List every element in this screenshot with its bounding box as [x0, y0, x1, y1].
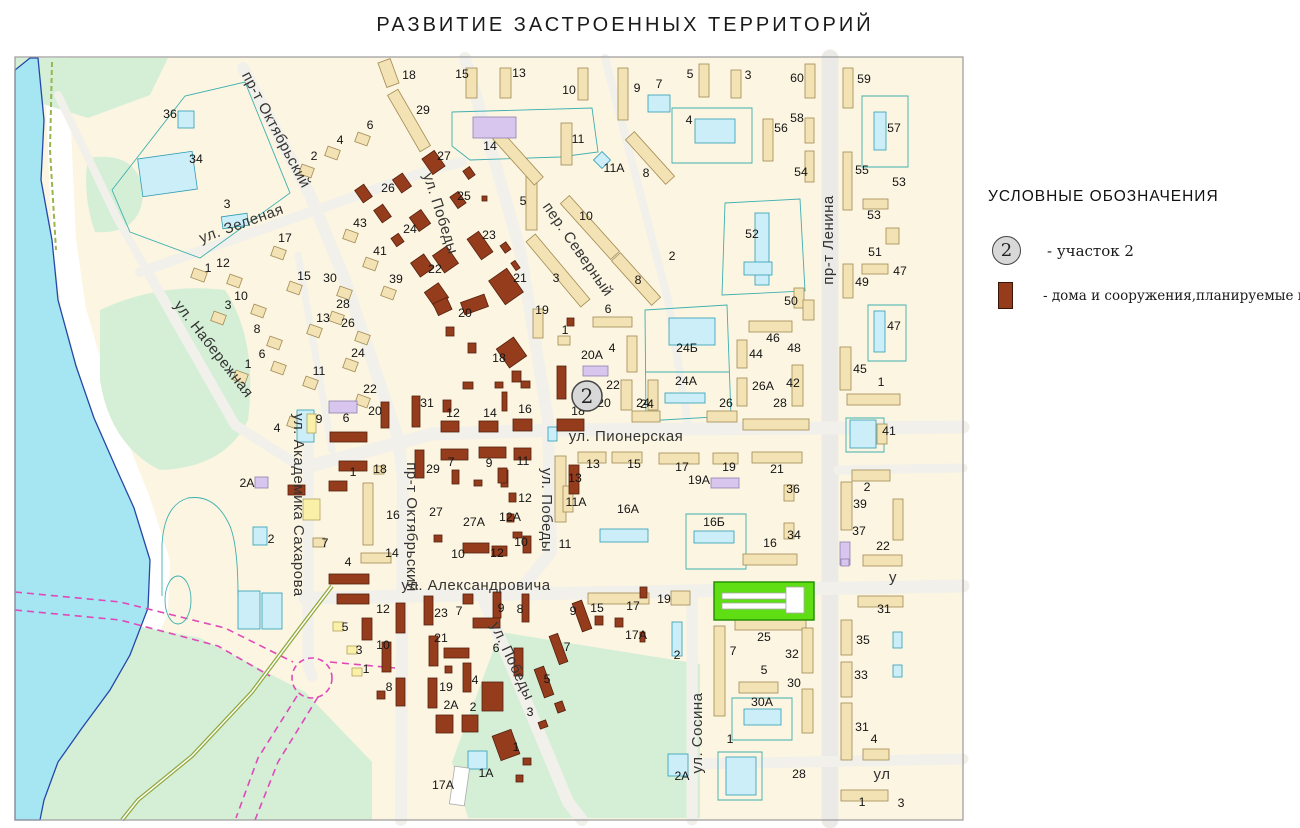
building-number-label: 17 [278, 231, 292, 245]
building-demolition [468, 343, 476, 353]
building-number-label: 19А [688, 473, 711, 487]
building-number-label: 24 [403, 222, 417, 236]
building-number-label: 6 [605, 302, 612, 316]
building-number-label: 2 [669, 249, 676, 263]
building-number-label: 8 [517, 602, 524, 616]
building-number-label: 12 [490, 546, 504, 560]
building-number-label: 45 [853, 362, 867, 376]
building-number-label: 4 [609, 341, 616, 355]
building-public [648, 95, 670, 112]
building-number-label: 7 [456, 604, 463, 618]
building-number-label: 7 [730, 644, 737, 658]
building-demolition [330, 432, 367, 442]
building-number-label: 6 [343, 411, 350, 425]
building-number-label: 53 [892, 175, 906, 189]
building-number-label: 49 [855, 275, 869, 289]
building-number-label: 1 [878, 375, 885, 389]
building-number-label: 28 [773, 396, 787, 410]
building-number-label: 1 [205, 261, 212, 275]
building-number-label: 3 [224, 197, 231, 211]
building-demolition [523, 758, 531, 765]
building-number-label: 9 [316, 412, 323, 426]
building-number-label: 2 [674, 648, 681, 662]
building-demolition [362, 618, 372, 640]
building-number-label: 3 [225, 298, 232, 312]
building-number-label: 31 [877, 602, 891, 616]
building-demolition [463, 663, 471, 692]
building-number-label: 2 [268, 532, 275, 546]
building-number-label: 24А [675, 374, 698, 388]
building-number-label: 26 [341, 316, 355, 330]
building-number-label: 48 [787, 341, 801, 355]
building-number-label: 31 [855, 720, 869, 734]
building [803, 300, 814, 320]
building-demolition [381, 402, 389, 428]
building-number-label: 16А [617, 502, 640, 516]
building-number-label: 39 [853, 497, 867, 511]
building-number-label: 1 [859, 795, 866, 809]
legend-title: УСЛОВНЫЕ ОБОЗНАЧЕНИЯ [988, 188, 1298, 206]
building [843, 68, 853, 108]
building-demolition [444, 648, 469, 658]
building [671, 591, 690, 605]
building-public [893, 665, 902, 677]
building-demolition [595, 616, 603, 625]
building-demolition [463, 543, 489, 553]
building [841, 482, 852, 530]
building-purple [473, 117, 516, 138]
building-number-label: 34 [189, 152, 203, 166]
building-demolition [462, 715, 478, 732]
building-number-label: 9 [634, 81, 641, 95]
building-number-label: 31 [420, 396, 434, 410]
street-name-label: у [889, 569, 897, 586]
building-public [600, 529, 648, 542]
building [893, 499, 903, 540]
building-number-label: 5 [342, 620, 349, 634]
building-number-label: 8 [643, 166, 650, 180]
building-number-label: 27 [437, 149, 451, 163]
building-number-label: 10 [451, 547, 465, 561]
building-demolition [463, 382, 473, 389]
building-demolition [495, 382, 503, 388]
building-number-label: 5 [761, 663, 768, 677]
building-number-label: 2А [239, 476, 255, 490]
building-demolition [377, 691, 385, 699]
building-number-label: 56 [774, 121, 788, 135]
building-number-label: 7 [322, 536, 329, 550]
building-number-label: 15 [455, 67, 469, 81]
building-number-label: 32 [785, 647, 799, 661]
building-demolition [337, 594, 369, 604]
building-number-label: 36 [786, 482, 800, 496]
building-demolition [640, 587, 647, 598]
building-number-label: 1 [363, 662, 370, 676]
building-number-label: 13 [512, 66, 526, 80]
building-number-label: 10 [579, 209, 593, 223]
building-number-label: 7 [448, 455, 455, 469]
legend-demolition-label: - дома и сооружения,планируемые к сносу [1043, 288, 1300, 304]
building-number-label: 60 [790, 71, 804, 85]
building-demolition [479, 447, 506, 458]
building [763, 119, 773, 161]
building-number-label: 22 [606, 378, 620, 392]
building-demolition [412, 396, 420, 427]
building-number-label: 13 [568, 471, 582, 485]
building [500, 68, 511, 98]
building-number-label: 22 [428, 262, 442, 276]
building-number-label: 25 [757, 630, 771, 644]
building-number-label: 29 [416, 103, 430, 117]
building-number-label: 8 [386, 680, 393, 694]
building-number-label: 9 [498, 601, 505, 615]
building-number-label: 12А [499, 510, 522, 524]
building-number-label: 30 [323, 271, 337, 285]
building-number-label: 30А [751, 695, 774, 709]
building-demolition [329, 481, 347, 491]
building-number-label: 1 [350, 465, 357, 479]
building [627, 336, 637, 372]
building-purple [583, 366, 608, 376]
street-name-label: ул. Пионерская [569, 428, 684, 445]
building-number-label: 57 [887, 121, 901, 135]
building-number-label: 19 [722, 460, 736, 474]
building-number-label: 54 [794, 165, 808, 179]
building-number-label: 22 [876, 539, 890, 553]
building-number-label: 22 [363, 382, 377, 396]
building [561, 123, 572, 165]
building-detail [786, 587, 804, 613]
building-number-label: 12 [376, 602, 390, 616]
building-public [238, 591, 260, 629]
building-demolition [428, 678, 437, 708]
building-number-label: 26 [381, 181, 395, 195]
street-name-label: ул. Александровича [401, 577, 550, 594]
building-demolition [482, 682, 503, 711]
building-number-label: 16 [386, 508, 400, 522]
building-number-label: 16 [763, 536, 777, 550]
plot-circle-icon: 2 [992, 236, 1021, 265]
planning-map-page: РАЗВИТИЕ ЗАСТРОЕННЫХ ТЕРРИТОРИЙ 18151310… [0, 0, 1300, 828]
building-demolition [498, 468, 507, 483]
building-purple [711, 478, 739, 488]
building [618, 68, 628, 120]
building-number-label: 15 [627, 457, 641, 471]
building-demolition [479, 421, 498, 432]
street-name-label: пр-т Октябрьский [403, 462, 420, 591]
building-number-label: 58 [790, 111, 804, 125]
building [841, 620, 852, 655]
building [843, 264, 853, 298]
building-number-label: 30 [787, 676, 801, 690]
building-number-label: 10 [514, 535, 528, 549]
building-number-label: 11 [559, 537, 572, 551]
building-number-label: 18 [492, 351, 506, 365]
building [714, 626, 725, 716]
building-number-label: 12 [216, 256, 230, 270]
legend: УСЛОВНЫЕ ОБОЗНАЧЕНИЯ 2 - участок 2 - дом… [988, 188, 1298, 206]
building-number-label: 5 [544, 672, 551, 686]
building-number-label: 11А [566, 495, 588, 509]
building-demolition [482, 196, 487, 201]
building-number-label: 44 [749, 347, 763, 361]
building-number-label: 24 [640, 397, 654, 411]
building-demolition [329, 574, 369, 584]
building-number-label: 13 [586, 457, 600, 471]
building-number-label: 4 [337, 133, 344, 147]
legend-item-demolition: - дома и сооружения,планируемые к сносу [998, 282, 1300, 309]
building-number-label: 5 [520, 194, 527, 208]
building-demolition [512, 371, 521, 382]
building-number-label: 23 [434, 606, 448, 620]
building-number-label: 2 [470, 700, 477, 714]
building-number-label: 11 [313, 364, 326, 378]
building-demolition [436, 715, 453, 733]
building-number-label: 2 [311, 149, 318, 163]
street-name-label: ул [874, 766, 891, 783]
building-number-label: 15 [297, 269, 311, 283]
building [862, 264, 888, 274]
building-detail [722, 593, 786, 599]
building-public [874, 311, 885, 352]
building-number-label: 25 [457, 189, 471, 203]
building [743, 419, 809, 430]
building-demolition [513, 419, 532, 431]
building-number-label: 8 [635, 273, 642, 287]
building-number-label: 19 [535, 303, 549, 317]
building-public [548, 427, 557, 441]
building [840, 347, 851, 390]
building-number-label: 24 [351, 346, 365, 360]
building [621, 380, 632, 410]
building [363, 483, 373, 545]
building-number-label: 4 [274, 421, 281, 435]
building-number-label: 17А [625, 628, 648, 642]
building-number-label: 1 [562, 323, 569, 337]
building [737, 340, 747, 368]
building-number-label: 28 [792, 767, 806, 781]
plot-marker-number: 2 [581, 384, 594, 408]
building-number-label: 14 [385, 546, 399, 560]
street-name-label: ул. Сосина [689, 692, 706, 773]
building-number-label: 13 [316, 311, 330, 325]
building-number-label: 16 [518, 402, 532, 416]
building-public [695, 119, 735, 143]
building-number-label: 4 [345, 555, 352, 569]
building-demolition [396, 603, 405, 633]
building-number-label: 29 [426, 462, 440, 476]
building-public [744, 709, 781, 725]
building-demolition [615, 618, 623, 627]
building-number-label: 41 [882, 424, 896, 438]
building-number-label: 24Б [676, 341, 698, 355]
street-name-label: ул. Академика Сахарова [290, 413, 307, 597]
building-number-label: 23 [482, 228, 496, 242]
building [805, 64, 815, 98]
building-demolition [557, 366, 566, 399]
building-number-label: 10 [234, 289, 248, 303]
building-demolition [452, 470, 459, 484]
building [578, 68, 588, 100]
building-number-label: 6 [259, 347, 266, 361]
legend-plot-label: - участок 2 [1047, 242, 1134, 260]
building-number-label: 17 [675, 460, 689, 474]
building-number-label: 1 [727, 732, 734, 746]
building-demolition [446, 327, 454, 336]
building-number-label: 12 [518, 491, 532, 505]
building-number-label: 41 [373, 244, 387, 258]
building-purple [841, 559, 849, 566]
building-demolition [396, 678, 405, 706]
building-public [694, 531, 734, 543]
building-demolition [463, 594, 473, 604]
building-number-label: 12 [446, 406, 460, 420]
building-number-label: 19 [439, 680, 453, 694]
building-number-label: 20 [458, 306, 472, 320]
building-number-label: 59 [857, 72, 871, 86]
building [743, 554, 797, 565]
building-number-label: 1 [245, 357, 252, 371]
building [558, 336, 570, 345]
building-number-label: 18 [402, 68, 416, 82]
building-number-label: 43 [353, 216, 367, 230]
building-number-label: 28 [336, 297, 350, 311]
building [863, 749, 889, 760]
building-public [253, 527, 267, 545]
building-number-label: 3 [527, 705, 534, 719]
building-number-label: 21 [513, 271, 527, 285]
building-number-label: 11А [604, 161, 626, 175]
building [632, 411, 660, 422]
building [707, 411, 737, 422]
building-public [262, 593, 282, 629]
building [852, 470, 890, 481]
building [841, 703, 852, 760]
building-number-label: 52 [745, 227, 759, 241]
building-number-label: 34 [787, 528, 801, 542]
street-name-label: пр-т Ленина [820, 195, 837, 285]
building-number-label: 53 [867, 208, 881, 222]
building-number-label: 9 [570, 604, 577, 618]
building-number-label: 10 [376, 638, 390, 652]
building-demolition [516, 775, 523, 782]
building-number-label: 14 [483, 406, 497, 420]
plot-marker-layer: 2 [572, 381, 602, 411]
building [863, 555, 902, 566]
building [847, 394, 900, 405]
building-number-label: 3 [745, 68, 752, 82]
building-number-label: 50 [784, 294, 798, 308]
building-number-label: 21 [434, 631, 448, 645]
building-number-label: 7 [656, 77, 663, 91]
building-number-label: 18 [373, 462, 387, 476]
building-number-label: 3 [553, 271, 560, 285]
building-demolition [521, 381, 530, 388]
building-number-label: 14 [483, 139, 497, 153]
building-number-label: 55 [855, 163, 869, 177]
building-number-label: 3 [356, 643, 363, 657]
building-number-label: 2А [674, 769, 690, 783]
building-number-label: 27А [463, 515, 486, 529]
building-number-label: 11 [572, 132, 585, 146]
building-number-label: 2А [443, 698, 459, 712]
building [731, 70, 741, 98]
building-number-label: 15 [590, 601, 604, 615]
building-public [665, 393, 705, 403]
building-number-label: 1А [478, 766, 494, 780]
building-number-label: 33 [854, 668, 868, 682]
building [593, 317, 632, 327]
building [739, 682, 778, 693]
legend-item-plot: 2 - участок 2 [992, 236, 1134, 265]
building-demolition [474, 480, 482, 486]
building-number-label: 4 [472, 673, 479, 687]
building-number-label: 19 [657, 592, 671, 606]
building-number-label: 20А [581, 348, 604, 362]
building-number-label: 42 [786, 376, 800, 390]
building-number-label: 21 [770, 462, 784, 476]
building-number-label: 11 [517, 454, 530, 468]
building-number-label: 6 [367, 118, 374, 132]
building [841, 662, 852, 697]
building-public [893, 632, 902, 648]
building-number-label: 5 [687, 67, 694, 81]
building-number-label: 17А [432, 778, 455, 792]
building-demolition [502, 392, 507, 411]
building-number-label: 4 [871, 732, 878, 746]
building-number-label: 46 [766, 331, 780, 345]
building-public [726, 757, 756, 795]
building-number-label: 47 [887, 319, 901, 333]
demolition-swatch-icon [998, 282, 1013, 309]
building-purple [255, 477, 268, 488]
building [737, 378, 747, 406]
building-public [744, 262, 772, 275]
building-number-label: 39 [389, 272, 403, 286]
building-public [874, 112, 886, 150]
building-demolition [434, 535, 442, 542]
building-demolition [509, 493, 516, 502]
building-number-label: 20 [368, 404, 382, 418]
building-number-label: 36 [163, 107, 177, 121]
building-demolition [424, 596, 433, 625]
building-number-label: 37 [852, 524, 866, 538]
building [699, 64, 709, 97]
building-public [178, 111, 194, 128]
building-number-label: 26 [719, 396, 733, 410]
building-number-label: 17 [626, 599, 640, 613]
building-number-label: 9 [486, 456, 493, 470]
building-number-label: 26А [752, 379, 775, 393]
building-yellow [352, 668, 362, 676]
building-number-label: 1 [513, 740, 520, 754]
building-number-label: 51 [868, 245, 882, 259]
building-number-label: 8 [254, 322, 261, 336]
building-detail [722, 603, 786, 609]
city-map: 18151310975360592914272625242322211111А8… [0, 0, 1300, 828]
building [886, 228, 899, 244]
building-number-label: 35 [856, 633, 870, 647]
building-number-label: 47 [893, 264, 907, 278]
building-number-label: 10 [562, 83, 576, 97]
building-public [850, 420, 876, 448]
street-name-label: ул. Победы [538, 468, 555, 552]
building-demolition [445, 666, 452, 673]
building [802, 628, 813, 673]
building-demolition [441, 421, 459, 432]
building-number-label: 2 [864, 480, 871, 494]
building-number-label: 3 [898, 796, 905, 810]
